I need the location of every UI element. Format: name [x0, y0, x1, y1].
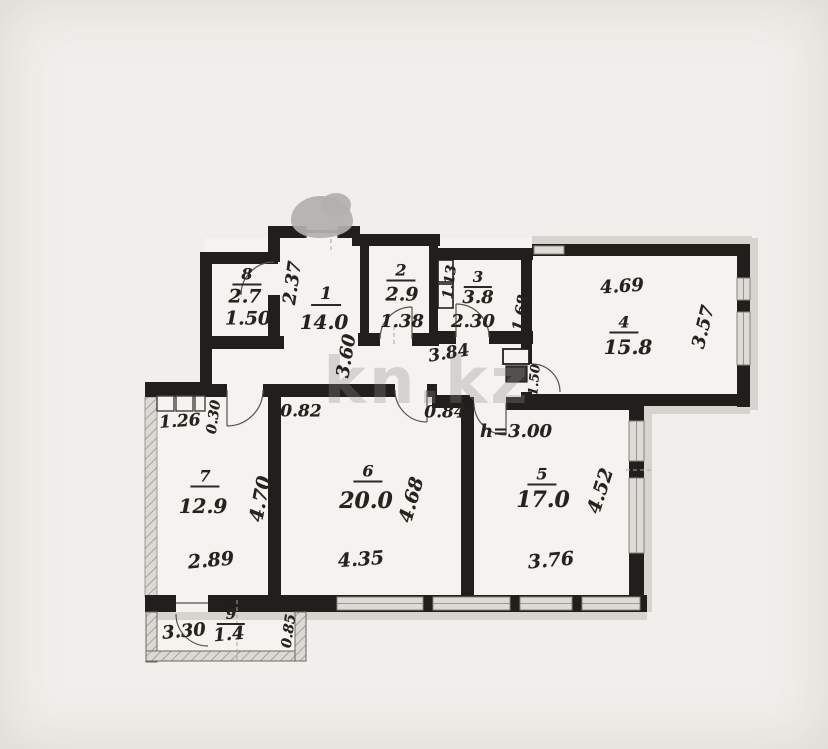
- room-2-number: 2: [386, 263, 415, 282]
- redaction-smudge-lobe: [321, 193, 351, 217]
- room-2-area: 2.9: [385, 286, 418, 305]
- wardrobe-box: [176, 396, 193, 411]
- room-3-dim-width: 2.30: [451, 313, 495, 331]
- room-9-dim-width: 3.30: [161, 621, 206, 643]
- room-7-area: 12.9: [179, 496, 228, 516]
- room-4-area: 15.8: [604, 337, 653, 357]
- room-1-area: 14.0: [300, 312, 349, 332]
- room-3-number: 3: [464, 270, 492, 288]
- room-8-dim-width: 1.50: [225, 310, 271, 329]
- room-4-number: 4: [609, 315, 638, 334]
- room-5-area: 17.0: [516, 489, 570, 511]
- room-5-ceiling-height: h=3.00: [480, 423, 552, 441]
- room-7-number: 7: [190, 469, 219, 488]
- wardrobe-box: [195, 396, 205, 411]
- room-3-area: 3.8: [462, 289, 493, 307]
- room-6-dim-top-left: 0.82: [280, 404, 321, 421]
- corridor-dim-duct: 1.50: [527, 364, 543, 397]
- room-6-number: 6: [353, 464, 382, 483]
- room-7-niche-width: 1.26: [159, 412, 201, 432]
- room-7-dim-width: 2.89: [187, 550, 235, 573]
- room-6-dim-top-right: 0.84: [424, 405, 465, 422]
- room-3-dim-left: 1.13: [441, 264, 459, 300]
- room-5-dim-width: 3.76: [527, 550, 575, 573]
- room-8-area: 2.7: [228, 288, 261, 307]
- room-8-number: 8: [232, 267, 261, 286]
- room-6-dim-width: 4.35: [337, 549, 384, 571]
- room-4-dim-width: 4.69: [600, 276, 645, 297]
- room-6-area: 20.0: [339, 490, 393, 512]
- wardrobe-box: [157, 396, 174, 411]
- room-5-number: 5: [527, 467, 556, 486]
- room-2-dim-width: 1.38: [380, 313, 424, 331]
- floorplan-page: kn.kz 1 14.0 2.37 3.60 2 2.9 1.38 3 3.8 …: [0, 0, 828, 749]
- room-9-area: 1.4: [213, 625, 246, 646]
- room-1-number: 1: [311, 286, 341, 306]
